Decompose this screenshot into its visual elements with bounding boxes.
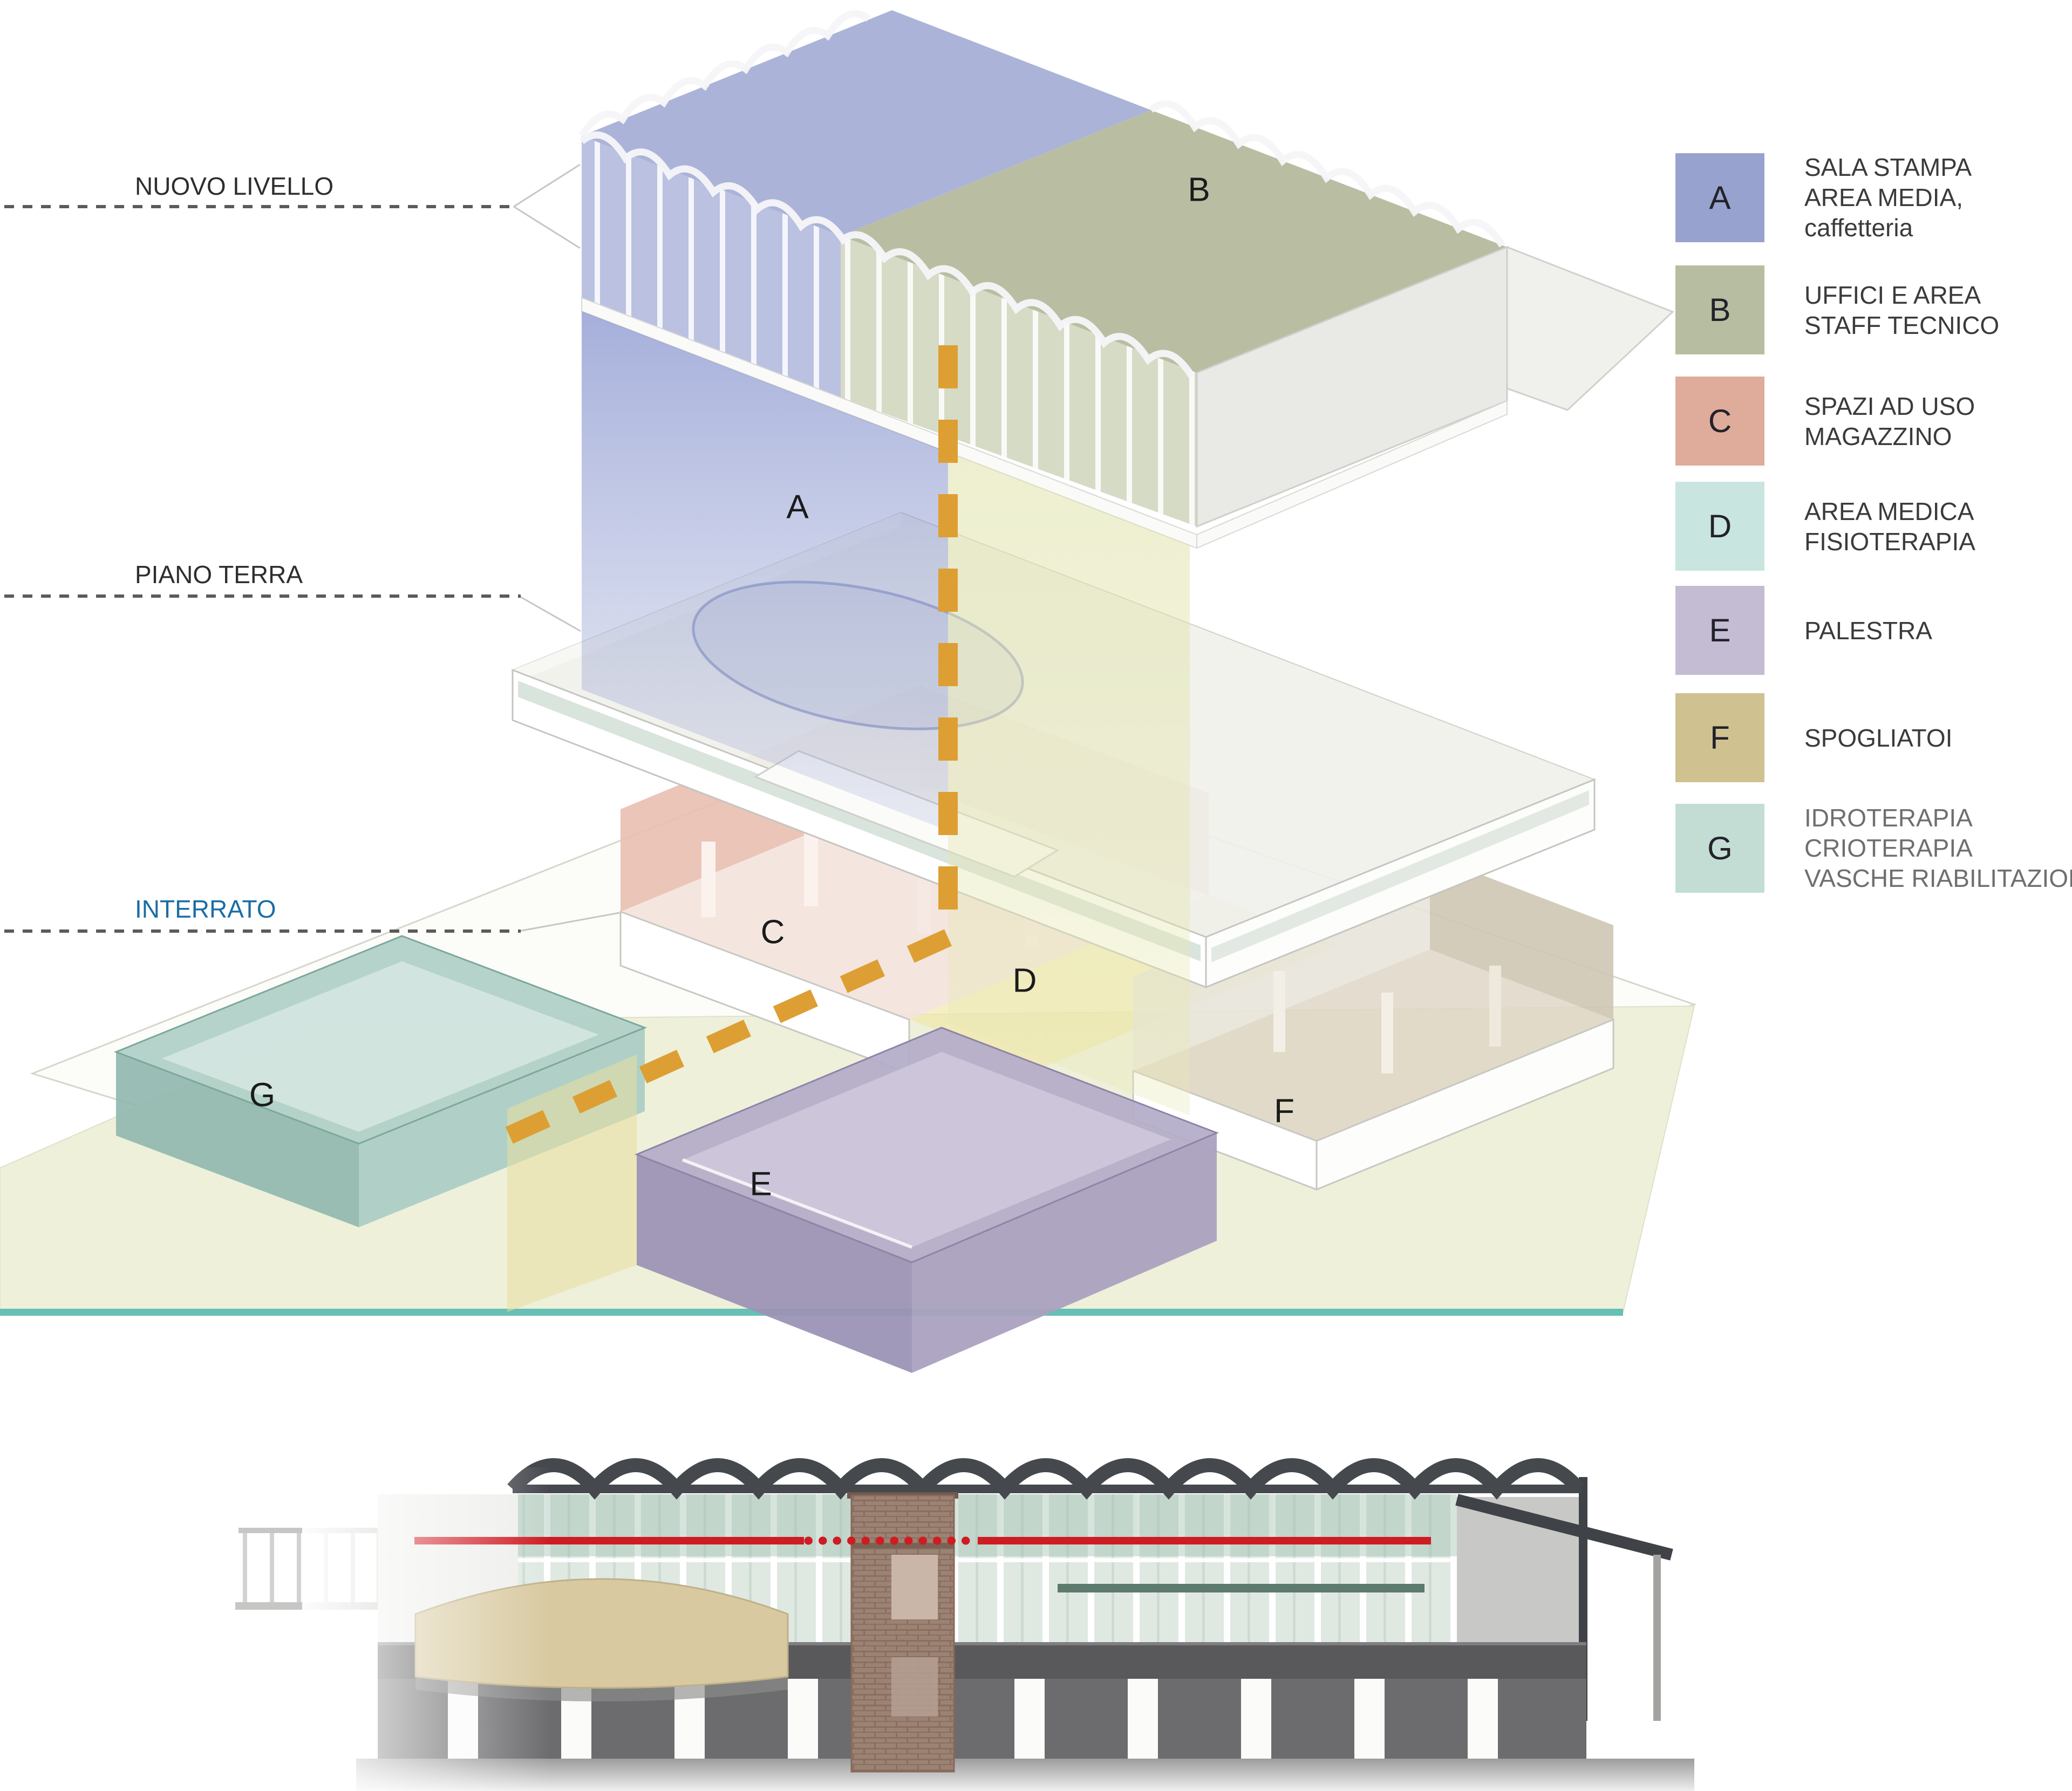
building-section-drawing [0,1413,2072,1791]
legend-label-d-line1: AREA MEDICA [1804,496,1975,527]
legend-label-a-line1: SALA STAMPA [1804,152,1972,182]
legend-item-g: G IDROTERAPIA CRIOTERAPIA VASCHE RIABILI… [1675,803,2072,893]
legend-label-f-line1: SPOGLIATOI [1804,723,1952,753]
legend-label-g-line1: IDROTERAPIA [1804,803,2072,833]
legend-item-a: A SALA STAMPA AREA MEDIA, caffetteria [1675,152,1972,243]
legend-item-f: F SPOGLIATOI [1675,693,1952,782]
zone-marker-b: B [1188,171,1210,209]
zone-marker-g: G [249,1076,275,1115]
legend-label-e-line1: PALESTRA [1804,616,1932,646]
zone-marker-d: D [1013,962,1037,1000]
legend-label-f: SPOGLIATOI [1804,723,1952,753]
legend-swatch-a: A [1675,153,1764,242]
zone-marker-f: F [1274,1092,1294,1131]
level-label-interrato: INTERRATO [135,894,276,924]
legend-label-a: SALA STAMPA AREA MEDIA, caffetteria [1804,152,1972,243]
legend-item-d: D AREA MEDICA FISIOTERAPIA [1675,482,1975,571]
legend-label-g-line2: CRIOTERAPIA [1804,833,2072,863]
legend-label-b: UFFICI E AREA STAFF TECNICO [1804,280,1999,340]
legend-label-a-line2: AREA MEDIA, [1804,182,1972,213]
stair-tower [847,1492,958,1772]
architecture-diagram-page: NUOVO LIVELLO PIANO TERRA INTERRATO A B … [0,0,2072,1791]
pool-sill [1058,1584,1424,1592]
section-cut-line [414,1537,1431,1544]
legend-label-g: IDROTERAPIA CRIOTERAPIA VASCHE RIABILITA… [1804,803,2072,893]
legend-item-b: B UFFICI E AREA STAFF TECNICO [1675,265,1999,354]
legend-item-c: C SPAZI AD USO MAGAZZINO [1675,377,1975,466]
legend-swatch-g: G [1675,804,1764,893]
level-label-nuovo-livello: NUOVO LIVELLO [135,172,333,201]
legend-swatch-c: C [1675,377,1764,466]
legend-swatch-e: E [1675,586,1764,675]
level-line-interrato [4,929,521,933]
legend-item-e: E PALESTRA [1675,586,1932,675]
legend-label-a-line3: caffetteria [1804,213,1972,243]
legend-label-d-line2: FISIOTERAPIA [1804,527,1975,557]
legend-label-b-line1: UFFICI E AREA [1804,280,1999,310]
zone-marker-a: A [786,488,808,527]
level-label-piano-terra: PIANO TERRA [135,560,303,589]
legend-label-c-line1: SPAZI AD USO [1804,391,1975,421]
zone-marker-e: E [749,1165,772,1204]
legend-swatch-b: B [1675,265,1764,354]
legend-swatch-f: F [1675,693,1764,782]
legend-label-b-line2: STAFF TECNICO [1804,310,1999,340]
legend-label-c: SPAZI AD USO MAGAZZINO [1804,391,1975,452]
zone-b-projection-band [948,452,1190,1116]
legend-label-g-line3: VASCHE RIABILITAZIONE [1804,863,2072,893]
level-line-nuovo-livello [4,205,515,208]
zone-marker-c: C [761,913,785,952]
level-line-piano-terra [4,594,521,598]
legend-label-d: AREA MEDICA FISIOTERAPIA [1804,496,1975,557]
legend-swatch-d: D [1675,482,1764,571]
legend-label-c-line2: MAGAZZINO [1804,421,1975,452]
legend-label-e: PALESTRA [1804,616,1932,646]
